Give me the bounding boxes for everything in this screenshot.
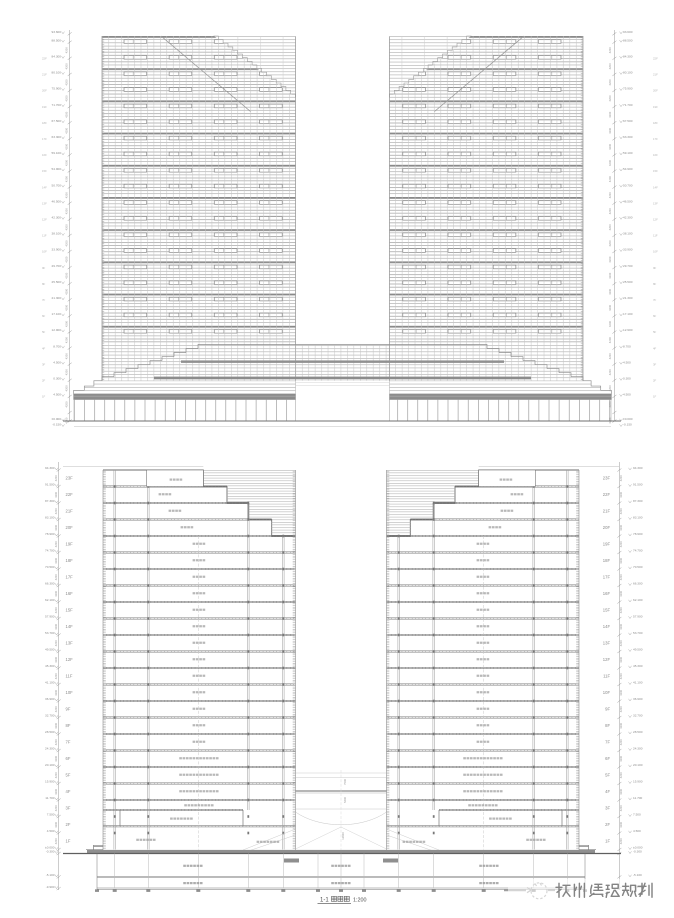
svg-text:4200: 4200	[65, 111, 69, 117]
svg-text:4200: 4200	[619, 475, 623, 481]
svg-text:4200: 4200	[619, 557, 623, 563]
svg-text:-9.900: -9.900	[46, 885, 55, 889]
svg-text:21F: 21F	[653, 73, 658, 77]
svg-text:8F: 8F	[653, 282, 657, 286]
svg-text:-0.150: -0.150	[623, 423, 632, 427]
svg-text:4200: 4200	[65, 63, 69, 69]
svg-text:4200: 4200	[619, 623, 623, 629]
svg-text:23F: 23F	[66, 476, 74, 481]
svg-text:4200: 4200	[54, 574, 58, 580]
svg-text:36.900: 36.900	[633, 697, 643, 701]
svg-text:54.900: 54.900	[623, 167, 633, 171]
svg-text:1F: 1F	[605, 839, 610, 844]
svg-text:21.300: 21.300	[623, 296, 633, 300]
svg-text:4200: 4200	[54, 838, 58, 844]
svg-text:4200: 4200	[54, 772, 58, 778]
svg-text:4200: 4200	[54, 557, 58, 563]
svg-text:-0.300: -0.300	[633, 850, 642, 854]
svg-text:±0.000: ±0.000	[52, 417, 62, 421]
svg-text:67.500: 67.500	[623, 119, 633, 123]
svg-text:4.500: 4.500	[623, 360, 631, 364]
svg-text:4200: 4200	[54, 805, 58, 811]
svg-text:12600: 12600	[341, 832, 345, 840]
svg-text:42.300: 42.300	[623, 216, 633, 220]
svg-text:45.300: 45.300	[633, 664, 643, 668]
svg-text:15F: 15F	[42, 169, 47, 173]
svg-text:88.500: 88.500	[623, 38, 633, 42]
svg-text:38.100: 38.100	[623, 232, 633, 236]
svg-text:4200: 4200	[608, 63, 612, 69]
svg-text:75.900: 75.900	[52, 87, 62, 91]
svg-text:94.300: 94.300	[633, 466, 643, 470]
svg-text:4200: 4200	[619, 524, 623, 530]
svg-text:3F: 3F	[66, 806, 71, 811]
svg-text:3F: 3F	[605, 806, 610, 811]
svg-text:4200: 4200	[65, 160, 69, 166]
svg-text:4200: 4200	[54, 739, 58, 745]
svg-text:11F: 11F	[653, 234, 658, 238]
svg-text:87.300: 87.300	[633, 499, 643, 503]
svg-text:1F: 1F	[653, 395, 657, 399]
svg-text:17.100: 17.100	[623, 312, 633, 316]
svg-text:16F: 16F	[653, 153, 658, 157]
svg-text:0.300: 0.300	[623, 377, 631, 381]
svg-text:4200: 4200	[619, 739, 623, 745]
svg-text:15.900: 15.900	[45, 780, 55, 784]
svg-text:7.500: 7.500	[47, 813, 55, 817]
svg-text:4200: 4200	[54, 689, 58, 695]
svg-text:8F: 8F	[66, 723, 71, 728]
svg-text:4200: 4200	[608, 304, 612, 310]
svg-text:4200: 4200	[608, 176, 612, 182]
svg-text:17F: 17F	[42, 137, 47, 141]
svg-text:38.100: 38.100	[52, 232, 62, 236]
svg-text:4.500: 4.500	[623, 393, 631, 397]
svg-text:1F: 1F	[66, 839, 71, 844]
svg-text:7500: 7500	[343, 779, 347, 785]
svg-text:4200: 4200	[65, 143, 69, 149]
svg-text:4.500: 4.500	[633, 829, 641, 833]
svg-text:6F: 6F	[42, 314, 46, 318]
svg-text:78.900: 78.900	[633, 532, 643, 536]
svg-text:4200: 4200	[54, 640, 58, 646]
svg-text:4200: 4200	[54, 623, 58, 629]
svg-text:21F: 21F	[66, 509, 74, 514]
svg-text:10F: 10F	[653, 250, 658, 254]
svg-text:4200: 4200	[65, 353, 69, 359]
svg-text:4200: 4200	[54, 706, 58, 712]
svg-text:2F: 2F	[66, 822, 71, 827]
svg-text:11F: 11F	[66, 674, 73, 679]
svg-text:4200: 4200	[54, 590, 58, 596]
svg-text:7F: 7F	[605, 740, 610, 745]
svg-text:21F: 21F	[603, 509, 611, 514]
svg-text:4200: 4200	[65, 224, 69, 230]
svg-text:4200: 4200	[619, 689, 623, 695]
svg-text:4200: 4200	[65, 256, 69, 262]
svg-text:4200: 4200	[608, 95, 612, 101]
svg-text:19F: 19F	[66, 542, 74, 547]
svg-text:33.900: 33.900	[623, 248, 633, 252]
svg-text:4200: 4200	[619, 772, 623, 778]
svg-text:17F: 17F	[603, 575, 611, 580]
svg-text:8.700: 8.700	[623, 344, 631, 348]
svg-text:0.300: 0.300	[53, 377, 61, 381]
svg-text:3F: 3F	[653, 362, 657, 366]
svg-text:4200: 4200	[65, 79, 69, 85]
svg-text:32.700: 32.700	[633, 714, 643, 718]
svg-text:17.100: 17.100	[52, 312, 62, 316]
svg-text:4200: 4200	[608, 79, 612, 85]
svg-text:20F: 20F	[653, 89, 658, 93]
svg-text:10F: 10F	[603, 690, 611, 695]
svg-text:4200: 4200	[54, 656, 58, 662]
svg-text:62.100: 62.100	[633, 598, 643, 602]
svg-text:4200: 4200	[54, 607, 58, 613]
svg-text:94.300: 94.300	[45, 466, 55, 470]
svg-text:66.300: 66.300	[633, 582, 643, 586]
svg-text:14F: 14F	[653, 185, 658, 189]
svg-text:4200: 4200	[65, 321, 69, 327]
svg-text:4F: 4F	[42, 346, 46, 350]
svg-text:22F: 22F	[42, 57, 47, 61]
svg-text:5F: 5F	[605, 773, 610, 778]
svg-text:4200: 4200	[608, 369, 612, 375]
svg-text:4200: 4200	[65, 417, 69, 423]
svg-text:4200: 4200	[619, 706, 623, 712]
svg-text:18F: 18F	[42, 121, 47, 125]
svg-text:4200: 4200	[619, 491, 623, 497]
svg-text:4200: 4200	[54, 475, 58, 481]
svg-text:62.100: 62.100	[45, 598, 55, 602]
svg-text:4200: 4200	[619, 805, 623, 811]
svg-text:25.500: 25.500	[52, 280, 62, 284]
svg-text:3F: 3F	[42, 362, 46, 366]
svg-text:4200: 4200	[54, 821, 58, 827]
svg-text:16F: 16F	[603, 591, 611, 596]
svg-text:4200: 4200	[619, 838, 623, 844]
svg-text:6F: 6F	[653, 314, 657, 318]
svg-text:4200: 4200	[65, 337, 69, 343]
svg-text:49.500: 49.500	[45, 648, 55, 652]
svg-text:21.300: 21.300	[52, 296, 62, 300]
svg-text:28.500: 28.500	[633, 730, 643, 734]
svg-text:19F: 19F	[42, 105, 47, 109]
svg-text:22F: 22F	[603, 492, 611, 497]
svg-text:15F: 15F	[653, 169, 658, 173]
svg-text:8F: 8F	[42, 282, 46, 286]
svg-text:4200: 4200	[54, 722, 58, 728]
svg-text:4.500: 4.500	[53, 360, 61, 364]
svg-text:4200: 4200	[65, 385, 69, 391]
svg-text:4.500: 4.500	[47, 829, 55, 833]
svg-text:83.100: 83.100	[633, 516, 643, 520]
svg-text:10F: 10F	[66, 690, 74, 695]
svg-text:20F: 20F	[66, 525, 74, 530]
svg-text:50.700: 50.700	[623, 183, 633, 187]
svg-text:4F: 4F	[66, 789, 71, 794]
svg-text:24.300: 24.300	[45, 747, 55, 751]
svg-text:-0.300: -0.300	[46, 850, 55, 854]
svg-text:7F: 7F	[42, 298, 46, 302]
svg-text:49.500: 49.500	[633, 648, 643, 652]
svg-text:41.100: 41.100	[45, 681, 55, 685]
svg-text:4200: 4200	[54, 508, 58, 514]
svg-text:4200: 4200	[619, 821, 623, 827]
svg-text:4200: 4200	[619, 541, 623, 547]
svg-text:50.700: 50.700	[52, 183, 62, 187]
svg-text:11.700: 11.700	[633, 796, 643, 800]
svg-text:83.100: 83.100	[45, 516, 55, 520]
svg-text:4200: 4200	[65, 288, 69, 294]
svg-text:4200: 4200	[54, 491, 58, 497]
svg-text:93.600: 93.600	[52, 30, 62, 34]
svg-text:24.300: 24.300	[633, 747, 643, 751]
svg-text:22F: 22F	[653, 57, 658, 61]
svg-text:13F: 13F	[603, 641, 611, 646]
svg-text:9F: 9F	[605, 707, 610, 712]
svg-text:4F: 4F	[653, 346, 657, 350]
svg-text:46.500: 46.500	[52, 199, 62, 203]
svg-text:15F: 15F	[66, 608, 74, 613]
svg-text:29.700: 29.700	[623, 264, 633, 268]
svg-text:9F: 9F	[42, 266, 46, 270]
svg-text:29.700: 29.700	[52, 264, 62, 268]
svg-text:63.300: 63.300	[52, 135, 62, 139]
svg-text:45.300: 45.300	[45, 664, 55, 668]
svg-text:5F: 5F	[66, 773, 71, 778]
svg-text:80.100: 80.100	[623, 71, 633, 75]
svg-text:80.100: 80.100	[52, 71, 62, 75]
svg-text:4200: 4200	[608, 160, 612, 166]
svg-text:78.900: 78.900	[45, 532, 55, 536]
svg-text:28.500: 28.500	[45, 730, 55, 734]
svg-text:1:200: 1:200	[353, 898, 367, 904]
svg-text:12.900: 12.900	[623, 328, 633, 332]
svg-text:57.900: 57.900	[633, 615, 643, 619]
svg-text:71.700: 71.700	[52, 103, 62, 107]
svg-text:4200: 4200	[54, 755, 58, 761]
svg-text:12F: 12F	[603, 657, 611, 662]
svg-text:4200: 4200	[608, 127, 612, 133]
svg-text:91.500: 91.500	[45, 483, 55, 487]
svg-text:5F: 5F	[653, 330, 657, 334]
svg-text:4200: 4200	[619, 590, 623, 596]
svg-text:-5.100: -5.100	[46, 873, 55, 877]
svg-text:93.600: 93.600	[623, 30, 633, 34]
svg-text:88.500: 88.500	[52, 38, 62, 42]
svg-text:4.500: 4.500	[53, 393, 61, 397]
svg-text:42.300: 42.300	[52, 216, 62, 220]
svg-text:7F: 7F	[66, 740, 71, 745]
svg-text:4200: 4200	[65, 208, 69, 214]
svg-text:4200: 4200	[608, 288, 612, 294]
svg-text:59.100: 59.100	[623, 151, 633, 155]
svg-text:16F: 16F	[42, 153, 47, 157]
svg-text:19F: 19F	[653, 105, 658, 109]
svg-text:4200: 4200	[65, 304, 69, 310]
svg-text:36.900: 36.900	[45, 697, 55, 701]
svg-text:4200: 4200	[608, 353, 612, 359]
svg-text:5400: 5400	[343, 797, 347, 803]
svg-text:18F: 18F	[603, 558, 611, 563]
svg-text:2F: 2F	[653, 379, 657, 383]
svg-text:67.500: 67.500	[52, 119, 62, 123]
svg-text:4200: 4200	[619, 722, 623, 728]
svg-text:4200: 4200	[54, 788, 58, 794]
svg-text:-5.100: -5.100	[633, 873, 642, 877]
svg-text:7F: 7F	[653, 298, 657, 302]
svg-text:18F: 18F	[66, 558, 74, 563]
svg-text:20F: 20F	[42, 89, 47, 93]
svg-text:9F: 9F	[653, 266, 657, 270]
svg-text:17F: 17F	[653, 137, 658, 141]
svg-text:57.900: 57.900	[45, 615, 55, 619]
svg-text:4200: 4200	[619, 508, 623, 514]
svg-text:20.100: 20.100	[45, 763, 55, 767]
svg-text:4200: 4200	[65, 401, 69, 407]
svg-text:14F: 14F	[42, 185, 47, 189]
svg-text:12F: 12F	[653, 218, 658, 222]
svg-text:75.900: 75.900	[623, 87, 633, 91]
svg-text:9F: 9F	[66, 707, 71, 712]
svg-text:4200: 4200	[608, 321, 612, 327]
svg-text:20.100: 20.100	[633, 763, 643, 767]
svg-text:70.500: 70.500	[633, 565, 643, 569]
svg-text:23F: 23F	[603, 476, 611, 481]
svg-text:17F: 17F	[66, 575, 74, 580]
svg-text:11.700: 11.700	[45, 796, 55, 800]
svg-text:8F: 8F	[605, 723, 610, 728]
svg-text:4200: 4200	[619, 607, 623, 613]
svg-text:19F: 19F	[603, 542, 611, 547]
svg-text:4200: 4200	[608, 143, 612, 149]
svg-text:84.300: 84.300	[52, 55, 62, 59]
svg-text:46.500: 46.500	[623, 199, 633, 203]
svg-text:4200: 4200	[619, 673, 623, 679]
svg-text:4200: 4200	[608, 256, 612, 262]
svg-text:4200: 4200	[608, 208, 612, 214]
svg-text:4200: 4200	[65, 47, 69, 53]
svg-text:4200: 4200	[65, 369, 69, 375]
svg-text:63.300: 63.300	[623, 135, 633, 139]
svg-text:54.900: 54.900	[52, 167, 62, 171]
svg-text:66.300: 66.300	[45, 582, 55, 586]
svg-text:4200: 4200	[619, 656, 623, 662]
svg-text:4200: 4200	[65, 127, 69, 133]
svg-text:15.900: 15.900	[633, 780, 643, 784]
svg-text:70.500: 70.500	[45, 565, 55, 569]
svg-text:4200: 4200	[54, 541, 58, 547]
svg-text:-0.150: -0.150	[52, 423, 61, 427]
svg-text:4200: 4200	[54, 673, 58, 679]
svg-text:22F: 22F	[66, 492, 74, 497]
svg-text:20F: 20F	[603, 525, 611, 530]
svg-text:91.500: 91.500	[633, 483, 643, 487]
svg-text:59.100: 59.100	[52, 151, 62, 155]
svg-text:12.900: 12.900	[52, 328, 62, 332]
svg-text:4200: 4200	[619, 640, 623, 646]
svg-text:7.500: 7.500	[633, 813, 641, 817]
svg-text:25.500: 25.500	[623, 280, 633, 284]
svg-text:53.700: 53.700	[45, 631, 55, 635]
svg-text:13F: 13F	[42, 201, 47, 205]
svg-text:32.700: 32.700	[45, 714, 55, 718]
svg-text:4200: 4200	[619, 755, 623, 761]
svg-text:1F: 1F	[42, 395, 46, 399]
svg-text:84.300: 84.300	[623, 55, 633, 59]
svg-text:11F: 11F	[603, 674, 610, 679]
svg-text:41.100: 41.100	[633, 681, 643, 685]
svg-text:4200: 4200	[608, 224, 612, 230]
svg-text:8.700: 8.700	[53, 344, 61, 348]
svg-text:14F: 14F	[66, 624, 74, 629]
svg-text:4200: 4200	[65, 192, 69, 198]
svg-text:4200: 4200	[619, 574, 623, 580]
svg-text:4200: 4200	[608, 240, 612, 246]
svg-text:12F: 12F	[42, 218, 47, 222]
svg-text:4200: 4200	[65, 95, 69, 101]
svg-text:74.700: 74.700	[633, 549, 643, 553]
svg-text:12F: 12F	[66, 657, 74, 662]
svg-text:5F: 5F	[42, 330, 46, 334]
svg-text:74.700: 74.700	[45, 549, 55, 553]
svg-text:4200: 4200	[608, 192, 612, 198]
svg-text:1-1: 1-1	[320, 898, 329, 904]
svg-text:4200: 4200	[54, 524, 58, 530]
svg-text:4200: 4200	[65, 240, 69, 246]
svg-text:4200: 4200	[608, 337, 612, 343]
svg-text:11F: 11F	[42, 234, 47, 238]
svg-text:4200: 4200	[608, 111, 612, 117]
svg-text:4200: 4200	[65, 176, 69, 182]
svg-text:6F: 6F	[66, 756, 71, 761]
svg-text:21F: 21F	[42, 73, 47, 77]
svg-text:±0.000: ±0.000	[623, 417, 633, 421]
svg-text:13F: 13F	[66, 641, 74, 646]
svg-text:2F: 2F	[605, 822, 610, 827]
svg-text:13F: 13F	[653, 201, 658, 205]
svg-text:2F: 2F	[42, 379, 46, 383]
svg-text:53.700: 53.700	[633, 631, 643, 635]
svg-text:33.900: 33.900	[52, 248, 62, 252]
svg-text:4200: 4200	[619, 788, 623, 794]
svg-text:4200: 4200	[65, 272, 69, 278]
svg-text:14F: 14F	[603, 624, 611, 629]
svg-text:16F: 16F	[66, 591, 74, 596]
svg-text:71.700: 71.700	[623, 103, 633, 107]
svg-text:87.300: 87.300	[45, 499, 55, 503]
svg-text:15F: 15F	[603, 608, 611, 613]
svg-text:6F: 6F	[605, 756, 610, 761]
svg-text:4200: 4200	[608, 272, 612, 278]
svg-text:10F: 10F	[42, 250, 47, 254]
svg-text:18F: 18F	[653, 121, 658, 125]
svg-text:4F: 4F	[605, 789, 610, 794]
svg-text:4200: 4200	[608, 47, 612, 53]
